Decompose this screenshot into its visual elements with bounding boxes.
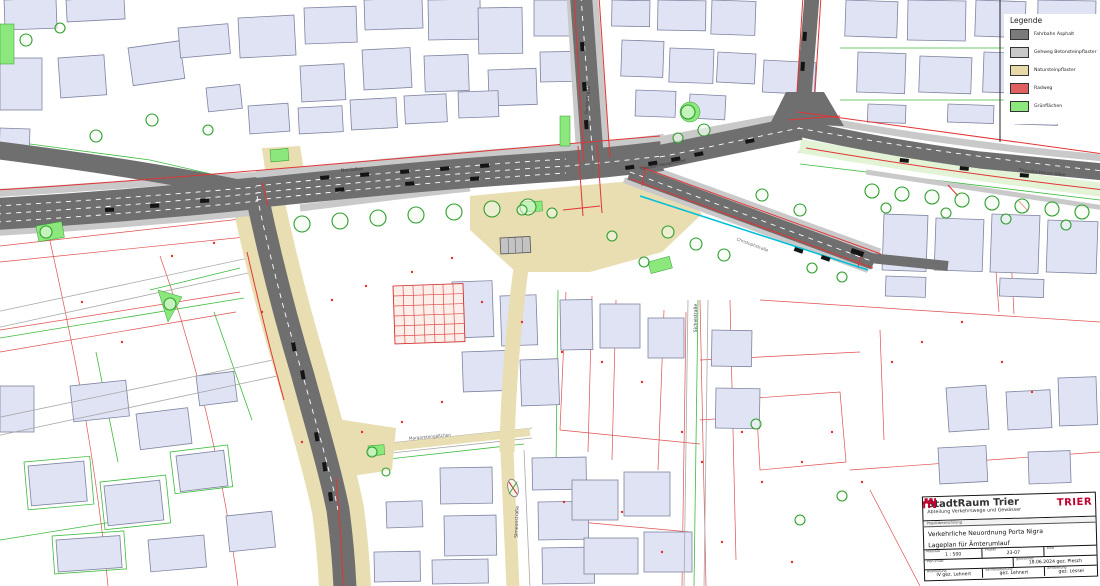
legend-swatch-radweg: [1010, 83, 1029, 94]
label-sichelstrasse: Sichelstraße: [693, 304, 699, 333]
legend: Legende Fahrbahn Asphalt Gehweg Betonste…: [1004, 14, 1100, 124]
field-projekt-value: 23-07: [985, 551, 1042, 558]
legend-item-gruenflaechen: Grünflächen: [1010, 101, 1100, 112]
legend-swatch-gruenflaechen: [1010, 101, 1029, 112]
field-bearbeitung-value: IV gez. Lehnert: [927, 572, 981, 578]
trees-layer: [20, 23, 1089, 525]
field-blatt-label: Blatt: [1047, 546, 1095, 551]
trier-logo-text: TRIER: [1057, 497, 1093, 509]
field-amtsleitung-value: gez. Lessel: [1047, 569, 1095, 575]
label-christophstrasse: Christophstraße: [736, 237, 770, 253]
legend-swatch-gehweg: [1010, 47, 1029, 58]
porta-nigra-footprint: [500, 236, 531, 254]
legend-item-radweg: Radweg: [1010, 83, 1100, 94]
legend-label: Grünflächen: [1034, 104, 1062, 109]
legend-label: Radweg: [1034, 86, 1052, 91]
legend-swatch-naturstein: [1010, 65, 1029, 76]
legend-item-fahrbahn: Fahrbahn Asphalt: [1010, 29, 1100, 40]
legend-label: Natursteinpflaster: [1034, 68, 1076, 73]
legend-item-naturstein: Natursteinpflaster: [1010, 65, 1100, 76]
legend-label: Gehweg Betonsteinpflaster: [1034, 50, 1097, 55]
site-plan-canvas: Nordallee Theodor-Heuss-Allee Theodor-He…: [0, 0, 1100, 586]
label-simeonstrasse: Simeonstraße: [513, 506, 520, 538]
title-block: StadtRaum Trier Abteilung Verkehrswege u…: [922, 492, 1098, 582]
plaza-grid: [393, 284, 465, 344]
trier-logo: TRIER: [1057, 497, 1093, 509]
legend-item-gehweg: Gehweg Betonsteinpflaster: [1010, 47, 1100, 58]
legend-title: Legende: [1010, 16, 1100, 25]
porta-nigra-logo-icon: [923, 497, 937, 508]
legend-swatch-fahrbahn-asphalt: [1010, 29, 1029, 40]
field-massstab-value: 1 : 500: [926, 552, 980, 558]
project-title: Verkehrliche Neuordnung Porta Nigra: [928, 527, 1092, 539]
field-sachbearbeitung-value: gez. Lehnert: [985, 571, 1042, 578]
legend-label: Fahrbahn Asphalt: [1034, 32, 1074, 37]
title-block-fields: Maßstab 1 : 500 Projekt 23-07 Blatt Plan…: [924, 546, 1097, 580]
